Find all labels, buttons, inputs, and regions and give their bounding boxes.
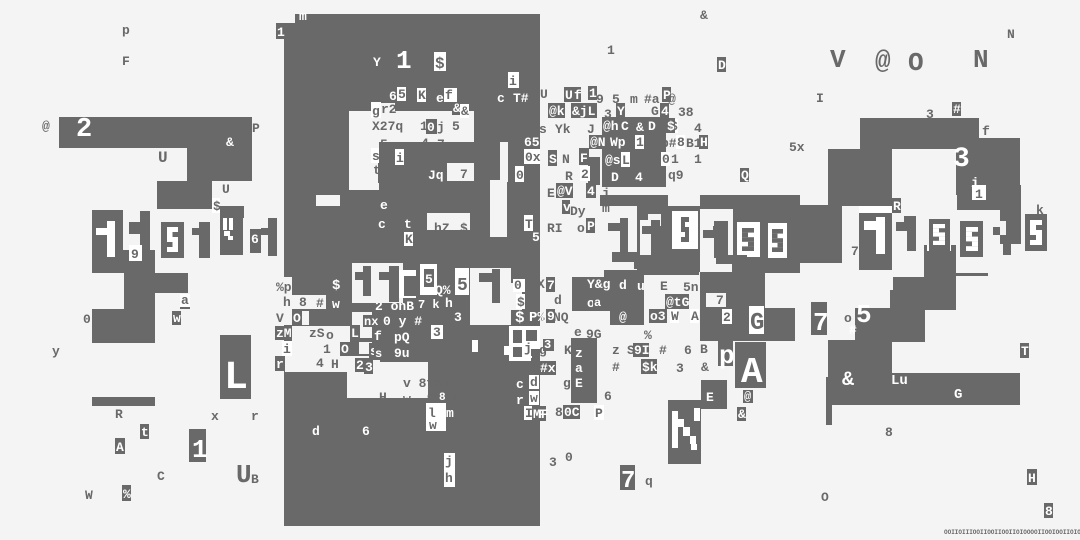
svg-text:8: 8 — [299, 295, 307, 310]
svg-text:K: K — [564, 343, 572, 358]
svg-text:T: T — [525, 217, 533, 232]
svg-text:E: E — [706, 390, 714, 405]
svg-text:P: P — [595, 406, 603, 421]
svg-text:$: $ — [332, 278, 340, 294]
svg-text:d: d — [554, 293, 562, 308]
svg-text:f: f — [374, 329, 382, 344]
svg-text:H: H — [331, 357, 339, 372]
svg-text:RI: RI — [547, 221, 563, 236]
svg-text:Y: Y — [373, 55, 381, 70]
svg-text:65: 65 — [524, 135, 540, 150]
svg-text:zM: zM — [276, 326, 292, 341]
svg-text:Dy: Dy — [570, 204, 586, 219]
svg-text:8: 8 — [885, 425, 893, 440]
svg-text:e: e — [380, 198, 388, 213]
svg-text:X: X — [537, 277, 545, 292]
svg-text:3: 3 — [433, 325, 441, 340]
svg-text:h: h — [283, 295, 291, 310]
svg-text:P: P — [252, 121, 260, 136]
svg-text:c: c — [516, 377, 524, 392]
svg-text:R: R — [115, 407, 123, 422]
svg-text:w: w — [332, 297, 340, 312]
svg-text:3: 3 — [953, 144, 970, 175]
svg-text:&: & — [453, 101, 461, 116]
svg-text:0: 0 — [662, 152, 670, 167]
svg-text:0: 0 — [427, 120, 435, 135]
svg-text:3: 3 — [549, 455, 557, 470]
svg-text:5: 5 — [457, 276, 468, 296]
svg-text:0x: 0x — [525, 150, 541, 165]
svg-text:#x: #x — [540, 361, 556, 376]
svg-text:2: 2 — [652, 152, 660, 167]
svg-text:@: @ — [619, 310, 627, 325]
svg-text:0C: 0C — [564, 405, 580, 420]
svg-text:7 k: 7 k — [418, 298, 440, 312]
svg-text:9: 9 — [131, 247, 139, 262]
svg-text:R: R — [893, 199, 901, 214]
svg-text:o: o — [577, 221, 585, 236]
svg-text:@tG: @tG — [666, 295, 690, 310]
svg-text:o: o — [326, 328, 334, 343]
svg-text:x: x — [211, 409, 219, 424]
svg-text:5: 5 — [425, 272, 433, 287]
svg-text:&: & — [700, 8, 708, 23]
svg-text:E: E — [660, 279, 668, 294]
svg-text:O: O — [293, 311, 301, 326]
svg-text:3: 3 — [365, 360, 373, 375]
svg-text:#: # — [612, 360, 620, 375]
svg-text:4: 4 — [421, 136, 429, 151]
svg-text:p: p — [122, 23, 130, 38]
svg-text:8: 8 — [555, 405, 563, 420]
svg-text:Lu: Lu — [891, 373, 908, 389]
svg-text:h: h — [445, 471, 453, 486]
svg-text:5: 5 — [856, 300, 872, 330]
svg-text:N: N — [1007, 27, 1015, 42]
svg-text:B: B — [700, 342, 708, 357]
svg-text:K: K — [405, 232, 413, 247]
svg-text:1: 1 — [277, 25, 285, 40]
svg-text:t: t — [373, 163, 381, 178]
svg-text:7: 7 — [621, 468, 635, 495]
svg-text:#: # — [316, 296, 324, 311]
svg-text:%: % — [123, 487, 131, 502]
svg-text:7: 7 — [716, 293, 724, 308]
svg-text:o3: o3 — [650, 309, 666, 324]
svg-text:U: U — [236, 460, 252, 490]
svg-text:L: L — [224, 356, 248, 401]
svg-text:%p: %p — [276, 280, 292, 295]
svg-text:9G: 9G — [586, 327, 602, 342]
svg-text:q9: q9 — [668, 168, 684, 183]
svg-text:hZ: hZ — [434, 221, 450, 236]
svg-text:#: # — [953, 102, 961, 117]
svg-text:$: $ — [460, 221, 468, 236]
svg-text:f: f — [982, 124, 990, 139]
svg-text:T: T — [1021, 344, 1029, 359]
svg-text:1: 1 — [192, 435, 208, 465]
svg-text:r: r — [276, 357, 284, 372]
svg-text:C: C — [621, 119, 629, 134]
svg-text:d: d — [619, 278, 627, 293]
svg-text:w: w — [173, 311, 181, 326]
svg-text:2: 2 — [356, 358, 364, 373]
svg-text:i: i — [971, 176, 979, 192]
svg-text:D: D — [718, 58, 726, 73]
svg-text:Q: Q — [741, 168, 749, 183]
svg-text:9: 9 — [547, 309, 555, 324]
svg-text:E: E — [575, 376, 583, 391]
svg-text:&: & — [701, 360, 709, 375]
svg-text:j: j — [602, 186, 610, 201]
svg-text:T#: T# — [513, 91, 529, 106]
svg-text:w: w — [403, 392, 411, 407]
svg-text:0: 0 — [514, 278, 522, 293]
svg-text:$: $ — [517, 295, 525, 310]
svg-text:8: 8 — [1045, 504, 1053, 519]
svg-text:1: 1 — [396, 46, 412, 76]
svg-text:L: L — [622, 153, 630, 168]
svg-text:e: e — [436, 91, 444, 106]
svg-text:U: U — [565, 88, 573, 103]
svg-text:@k: @k — [549, 104, 565, 119]
svg-text:A: A — [741, 352, 763, 393]
svg-text:F: F — [580, 151, 588, 166]
svg-text:@s: @s — [605, 153, 621, 168]
svg-text:v: v — [563, 200, 571, 215]
svg-text:r: r — [251, 409, 259, 424]
svg-text:7: 7 — [547, 278, 555, 293]
svg-text:s: s — [539, 122, 547, 137]
svg-text:d: d — [530, 375, 538, 390]
svg-text:OOIIOIIIOOIIOOIIOOIIOIOOOOIIOO: OOIIOIIIOOIIOOIIOOIIOIOOOOIIOOIOOIIOIO — [944, 529, 1080, 536]
svg-text:N: N — [973, 45, 989, 75]
svg-text:5x: 5x — [789, 140, 805, 155]
svg-text:u: u — [637, 279, 645, 294]
svg-text:2: 2 — [76, 115, 92, 145]
svg-text:$: $ — [213, 199, 221, 214]
svg-text:z: z — [612, 343, 620, 358]
svg-text:w: w — [429, 418, 437, 433]
svg-text:t: t — [404, 217, 412, 232]
svg-text:@: @ — [744, 390, 751, 404]
svg-text:&jL: &jL — [572, 104, 596, 119]
svg-text:0: 0 — [83, 312, 91, 327]
svg-text:Yk: Yk — [555, 122, 571, 137]
svg-text:4: 4 — [694, 121, 702, 136]
svg-text:G: G — [954, 387, 962, 403]
svg-text:5n: 5n — [683, 280, 699, 295]
svg-text:f: f — [574, 88, 582, 103]
svg-text:3: 3 — [676, 361, 684, 376]
svg-text:a: a — [575, 361, 583, 376]
svg-text:K: K — [418, 88, 426, 103]
svg-text:k: k — [1036, 203, 1044, 218]
svg-text:m: m — [630, 92, 638, 107]
svg-text:9u: 9u — [394, 346, 410, 361]
svg-text:R: R — [565, 169, 573, 184]
svg-text:7: 7 — [437, 137, 445, 152]
svg-text:z: z — [575, 346, 583, 361]
svg-text:q: q — [645, 474, 653, 489]
svg-text:m: m — [446, 406, 454, 421]
svg-text:3: 3 — [454, 310, 462, 325]
svg-text:3: 3 — [926, 107, 934, 122]
svg-text:W: W — [671, 309, 679, 324]
svg-text:5: 5 — [452, 119, 460, 134]
svg-text:A: A — [691, 309, 699, 324]
svg-text:l: l — [384, 346, 392, 361]
svg-text:A: A — [116, 440, 124, 455]
svg-text:1: 1 — [694, 152, 702, 167]
svg-text:i: i — [509, 74, 517, 89]
svg-text:P: P — [587, 219, 595, 234]
svg-text:6: 6 — [684, 343, 692, 358]
svg-text:38: 38 — [678, 105, 694, 120]
svg-text:U: U — [158, 149, 168, 167]
svg-text:U: U — [222, 182, 230, 197]
svg-text:8: 8 — [677, 135, 685, 150]
svg-text:1: 1 — [671, 152, 679, 167]
svg-text:@N: @N — [590, 135, 606, 150]
svg-text:p: p — [719, 341, 735, 371]
svg-text:V: V — [276, 311, 284, 326]
svg-text:j: j — [524, 341, 532, 356]
svg-text:s: s — [372, 149, 380, 164]
svg-text:w: w — [530, 391, 538, 406]
svg-text:S: S — [549, 152, 557, 167]
svg-text:r2: r2 — [381, 102, 397, 117]
svg-text:i: i — [283, 342, 291, 357]
svg-text:4: 4 — [635, 170, 643, 185]
svg-text:6: 6 — [251, 232, 259, 247]
svg-text:e: e — [574, 325, 582, 340]
svg-text:3: 3 — [544, 338, 551, 352]
svg-text:4: 4 — [661, 104, 669, 119]
svg-text:F: F — [350, 343, 358, 358]
svg-text:j: j — [445, 454, 453, 469]
svg-text:6: 6 — [604, 389, 612, 404]
svg-text:%: % — [644, 328, 652, 343]
svg-text:@: @ — [875, 46, 891, 76]
svg-text:MF: MF — [533, 407, 549, 422]
svg-text:7: 7 — [813, 308, 829, 338]
svg-text:g: g — [563, 376, 571, 391]
svg-text:#: # — [659, 343, 667, 358]
svg-text:NQ: NQ — [553, 310, 569, 325]
svg-text:@: @ — [42, 119, 50, 134]
svg-text:B: B — [251, 472, 259, 487]
svg-text:6: 6 — [389, 89, 397, 104]
svg-text:U: U — [540, 87, 548, 102]
svg-text:y: y — [52, 344, 60, 359]
svg-text:D: D — [611, 170, 619, 185]
svg-text:F: F — [122, 54, 130, 69]
svg-text:h: h — [445, 296, 453, 311]
svg-text:9: 9 — [596, 92, 604, 107]
svg-text:#: # — [849, 323, 857, 338]
svg-text:a: a — [594, 296, 601, 310]
svg-text:X27q: X27q — [372, 119, 403, 134]
svg-text:zS: zS — [309, 326, 325, 341]
svg-text:C: C — [157, 469, 165, 484]
svg-text:P%: P% — [529, 310, 546, 326]
svg-text:1: 1 — [636, 135, 644, 150]
svg-text:L: L — [351, 326, 359, 341]
svg-text:d: d — [312, 424, 320, 439]
svg-text:1: 1 — [323, 342, 331, 357]
svg-text:2: 2 — [581, 167, 589, 182]
svg-text:7: 7 — [851, 244, 859, 259]
svg-text:5: 5 — [380, 137, 388, 152]
svg-text:N: N — [562, 152, 570, 167]
svg-text:a: a — [181, 293, 189, 308]
svg-text:G: G — [750, 310, 764, 337]
svg-text:H: H — [379, 390, 387, 405]
svg-text:8: 8 — [439, 392, 446, 404]
svg-text:s: s — [375, 347, 382, 361]
svg-text:$: $ — [435, 55, 445, 73]
svg-text:W: W — [85, 488, 93, 503]
svg-text:r: r — [516, 393, 524, 408]
svg-text:H: H — [700, 135, 708, 150]
svg-text:Y: Y — [617, 104, 625, 119]
svg-text:Y&g: Y&g — [587, 277, 611, 292]
svg-text:Jq: Jq — [428, 168, 444, 183]
svg-text:1: 1 — [589, 86, 597, 101]
svg-text:&: & — [636, 120, 644, 135]
svg-text:&: & — [842, 369, 854, 392]
svg-text:i: i — [396, 151, 404, 166]
svg-text:m: m — [602, 201, 610, 216]
svg-text:5: 5 — [532, 230, 540, 245]
svg-text:1: 1 — [607, 43, 615, 58]
svg-text:c: c — [378, 217, 386, 232]
svg-text:O: O — [908, 48, 924, 78]
svg-text:O: O — [341, 342, 349, 357]
svg-text:c: c — [497, 91, 505, 106]
svg-text:4: 4 — [587, 184, 595, 199]
svg-text:$: $ — [667, 119, 675, 134]
svg-text:&: & — [738, 407, 746, 422]
svg-text:I: I — [525, 406, 533, 421]
svg-text:j: j — [437, 120, 445, 135]
svg-text:6: 6 — [362, 424, 370, 439]
svg-text:7: 7 — [460, 167, 468, 182]
svg-text:pQ: pQ — [394, 330, 410, 345]
svg-text:V: V — [830, 45, 846, 75]
svg-text:0 y #: 0 y # — [383, 314, 422, 329]
svg-text:g: g — [372, 104, 380, 119]
svg-text:0: 0 — [565, 450, 573, 465]
svg-text:Wp: Wp — [610, 135, 626, 150]
svg-text:Q%: Q% — [435, 283, 451, 298]
svg-text:H: H — [1028, 471, 1036, 486]
svg-text:$k: $k — [642, 360, 658, 375]
svg-text:0: 0 — [516, 168, 524, 183]
svg-text:4: 4 — [316, 356, 324, 371]
svg-text:2: 2 — [723, 310, 731, 325]
svg-text:9I: 9I — [634, 343, 650, 358]
svg-text:1: 1 — [450, 390, 458, 405]
svg-text:P: P — [663, 88, 671, 103]
svg-text:$: $ — [515, 309, 525, 327]
svg-text:I: I — [816, 91, 824, 106]
svg-text:&: & — [226, 135, 234, 150]
svg-text:D: D — [648, 119, 656, 134]
svg-text:t: t — [141, 425, 149, 440]
svg-text:@V: @V — [557, 184, 573, 199]
svg-text:f: f — [445, 88, 453, 103]
svg-text:E: E — [547, 186, 555, 201]
svg-text:G: G — [651, 104, 659, 119]
svg-text:5: 5 — [398, 87, 406, 102]
svg-text:O: O — [821, 490, 829, 505]
svg-text:m: m — [299, 9, 307, 24]
svg-text:&: & — [461, 104, 469, 119]
svg-text:b#: b# — [661, 136, 677, 151]
svg-text:@h: @h — [603, 119, 619, 134]
